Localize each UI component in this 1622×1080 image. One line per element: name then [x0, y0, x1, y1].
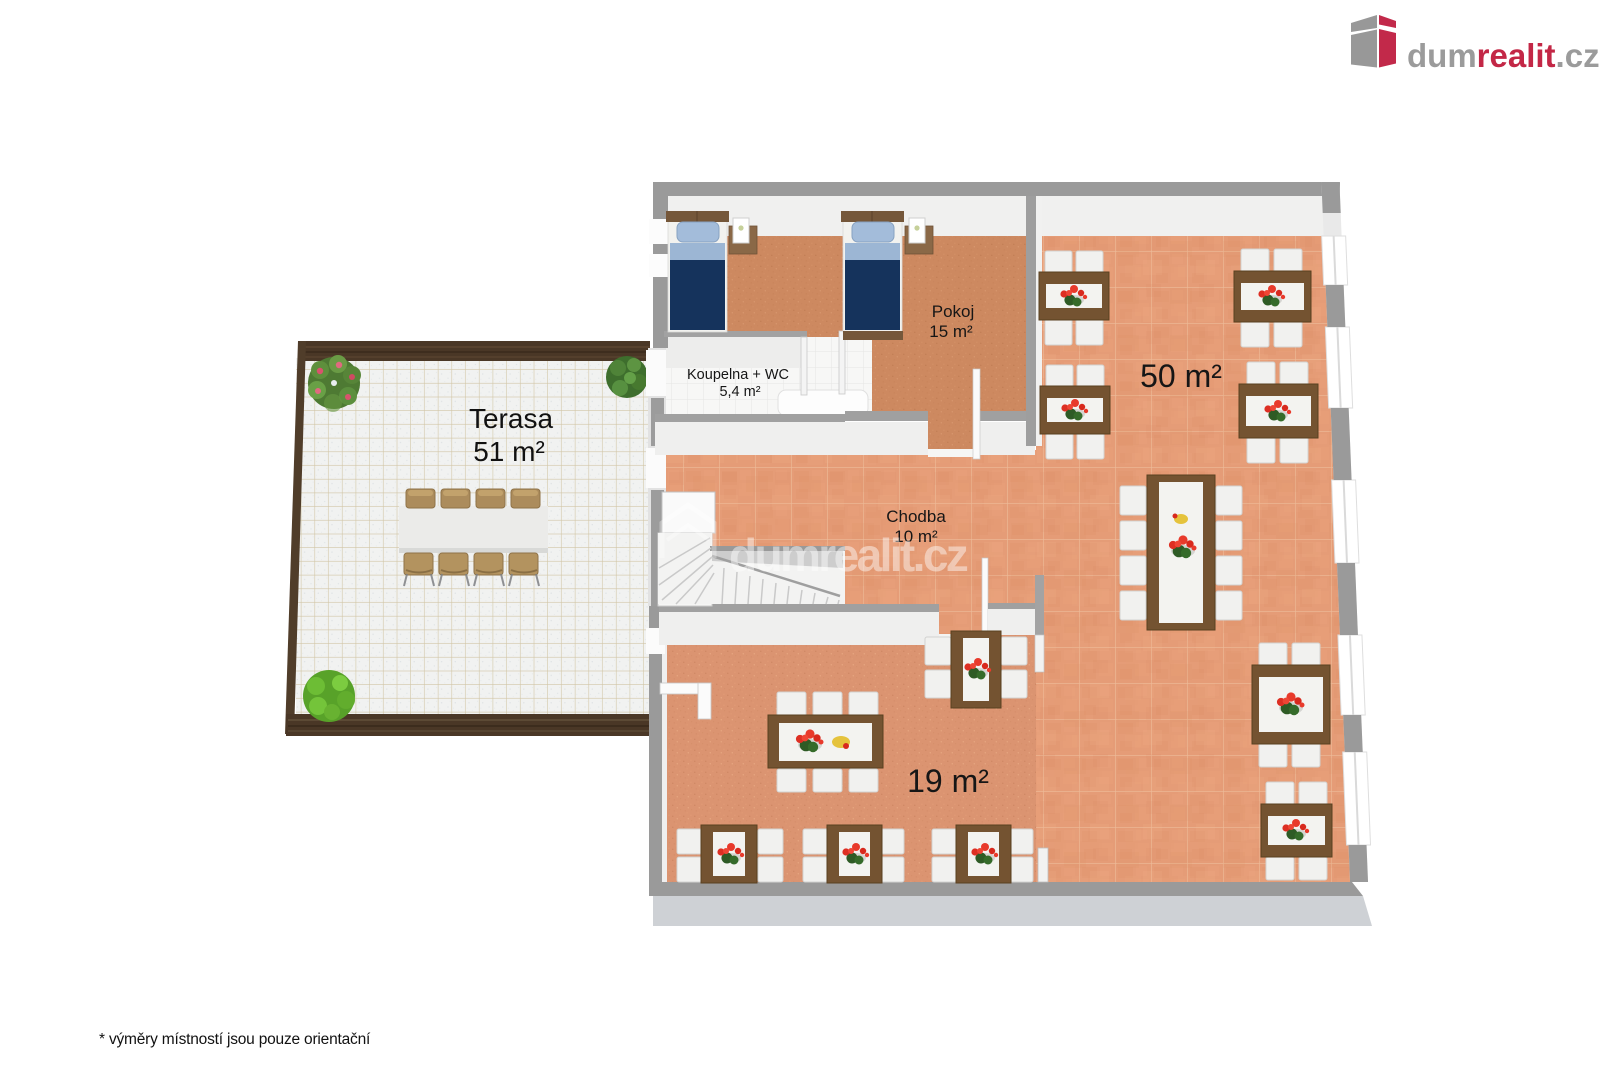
svg-text:51 m²: 51 m² — [473, 436, 545, 467]
svg-text:Koupelna + WC: Koupelna + WC — [687, 367, 789, 383]
svg-text:50 m²: 50 m² — [1140, 358, 1222, 394]
svg-text:19 m²: 19 m² — [907, 763, 989, 799]
svg-text:dumrealit.cz: dumrealit.cz — [1407, 37, 1600, 74]
svg-text:Chodba: Chodba — [886, 507, 946, 526]
svg-text:Pokoj: Pokoj — [932, 302, 975, 321]
svg-text:* výměry místností jsou pouz: * výměry místností jsou pouze orientační — [99, 1031, 371, 1048]
svg-text:Terasa: Terasa — [469, 403, 553, 434]
svg-text:dumrealit.cz: dumrealit.cz — [729, 529, 968, 581]
svg-text:5,4 m²: 5,4 m² — [719, 384, 760, 400]
svg-text:15 m²: 15 m² — [929, 322, 973, 341]
